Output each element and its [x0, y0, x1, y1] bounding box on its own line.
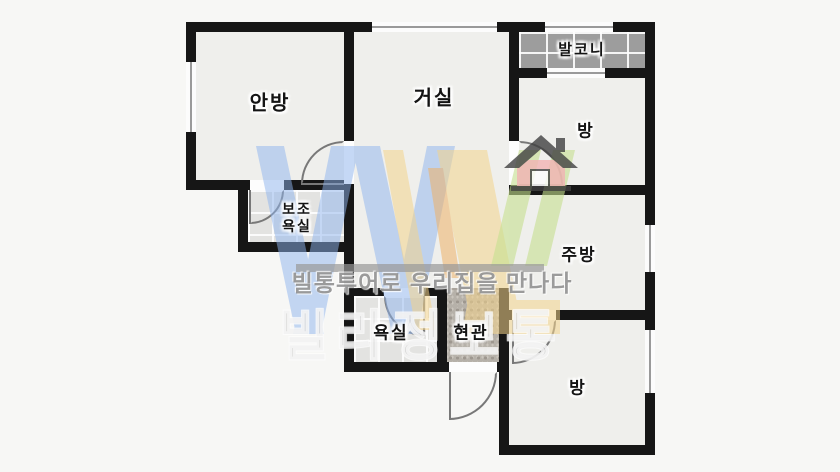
- door-swing-arc: [449, 372, 497, 420]
- wall: [509, 185, 655, 195]
- label-anbang: 안방: [250, 87, 291, 116]
- label-bojo-line2: 욕실: [282, 218, 312, 235]
- wall: [344, 22, 354, 141]
- label-hyeongwan: 현관: [453, 319, 488, 344]
- window: [547, 68, 605, 78]
- label-bojo-yoksil: 보조 욕실: [282, 201, 312, 235]
- wall: [238, 242, 354, 252]
- label-jubang: 주방: [561, 241, 596, 266]
- label-balcony: 발코니: [558, 39, 605, 60]
- door-leaf: [301, 183, 344, 185]
- door-leaf: [249, 190, 251, 224]
- window: [645, 330, 655, 393]
- door-leaf: [519, 184, 563, 186]
- door-leaf: [449, 372, 451, 420]
- window: [186, 62, 196, 132]
- label-bang-top: 방: [577, 117, 595, 142]
- door-opening: [344, 141, 354, 184]
- floor-plan: 안방 거실 발코니 방 보조 욕실 주방 욕실 현관 방: [0, 0, 840, 472]
- window: [645, 225, 655, 272]
- label-bojo-line1: 보조: [282, 201, 312, 218]
- wall: [509, 22, 519, 141]
- wall: [556, 310, 655, 320]
- door-opening: [250, 180, 284, 190]
- room-geosil: [354, 32, 509, 288]
- watermark-brand-text: 빌라정보통: [279, 292, 562, 371]
- label-bang-bottom: 방: [569, 374, 587, 399]
- label-geosil: 거실: [414, 82, 455, 111]
- window: [372, 22, 497, 32]
- window: [545, 22, 613, 32]
- label-yoksil: 욕실: [373, 319, 408, 344]
- floorplan-screenshot: { "plan": { "type": "apartment-floor-pla…: [0, 0, 840, 472]
- door-opening: [509, 141, 519, 185]
- wall: [499, 445, 655, 455]
